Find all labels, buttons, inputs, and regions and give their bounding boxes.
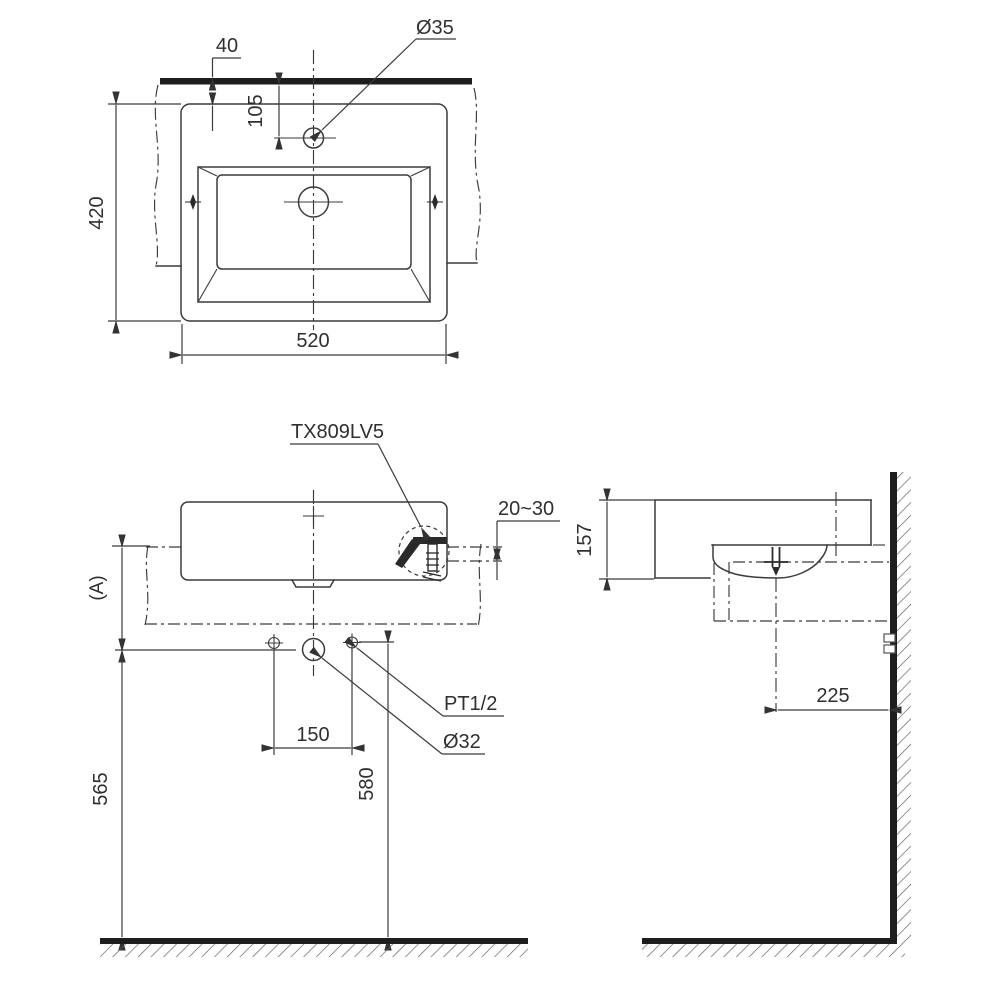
callout-faucet-hole: Ø35 [322, 17, 456, 130]
callout-supply-thread: PT1/2 [357, 648, 504, 716]
bowl-corner-tr [411, 167, 430, 176]
bracket-bar [413, 537, 447, 544]
basin-installation-drawing: 40 105 420 520 Ø35 [0, 0, 1000, 1000]
dim-basin-width: 520 [182, 324, 446, 364]
dim-counter-thickness-label: 20~30 [498, 498, 554, 520]
counter-break-front-left [145, 546, 148, 625]
callout-drain-hole-label: Ø32 [443, 731, 481, 753]
counter-break-front-right [478, 544, 481, 627]
wall-section-line [160, 78, 472, 85]
floor-hatching-front [100, 944, 528, 957]
floor-line-side [642, 938, 897, 944]
dim-counter-height: (A) [87, 546, 150, 649]
floor-line-front [100, 938, 528, 944]
drain-fitting [764, 547, 788, 576]
dim-floor-to-drain-label: 565 [90, 772, 112, 805]
wall-line-side [890, 472, 897, 944]
dim-basin-height-label: 157 [574, 523, 596, 556]
rim-center-mark [303, 506, 324, 526]
side-view: 157 225 [574, 472, 911, 957]
dim-floor-to-drain: 565 [90, 652, 122, 937]
dim-drain-to-wall-label: 225 [816, 685, 849, 707]
front-view: TX809LV5 (A) 20~30 [87, 421, 560, 957]
dim-floor-to-supply: 580 [356, 642, 394, 937]
dim-basin-height: 157 [574, 500, 654, 579]
dim-counter-thickness: 20~30 [497, 498, 560, 580]
dim-wall-to-rim-label: 40 [216, 35, 238, 57]
technical-drawing-page: 40 105 420 520 Ø35 [0, 0, 1000, 1000]
dim-basin-depth-label: 420 [86, 196, 108, 229]
bowl-corner-br [411, 269, 430, 302]
supply-hole-left [265, 634, 283, 652]
dim-wall-to-faucet-label: 105 [245, 94, 267, 127]
dim-basin-width-label: 520 [296, 330, 329, 352]
dim-wall-to-faucet: 105 [245, 86, 279, 136]
plan-view: 40 105 420 520 Ø35 [86, 17, 480, 364]
callout-faucet-hole-label: Ø35 [416, 17, 454, 39]
callout-supply-thread-label: PT1/2 [444, 693, 497, 715]
dim-basin-depth: 420 [86, 104, 181, 321]
dim-floor-to-supply-label: 580 [356, 767, 378, 800]
dim-supply-spacing-label: 150 [296, 724, 329, 746]
bowl-corner-bl [198, 269, 217, 302]
floor-hatching-side [642, 944, 905, 957]
bowl-corner-tl [198, 167, 217, 176]
dim-drain-to-wall: 225 [778, 685, 888, 710]
dim-supply-spacing: 150 [274, 649, 352, 755]
dim-counter-height-label: (A) [87, 575, 108, 600]
product-code-label: TX809LV5 [291, 421, 384, 443]
callout-product-code: TX809LV5 [290, 421, 421, 527]
basin-side-profile [655, 500, 871, 578]
wall-hatching [897, 472, 911, 944]
bracket-bolt [428, 544, 437, 571]
counter-break-right [474, 88, 480, 263]
fixing-bracket [395, 526, 449, 581]
counter-break-left [155, 85, 159, 266]
